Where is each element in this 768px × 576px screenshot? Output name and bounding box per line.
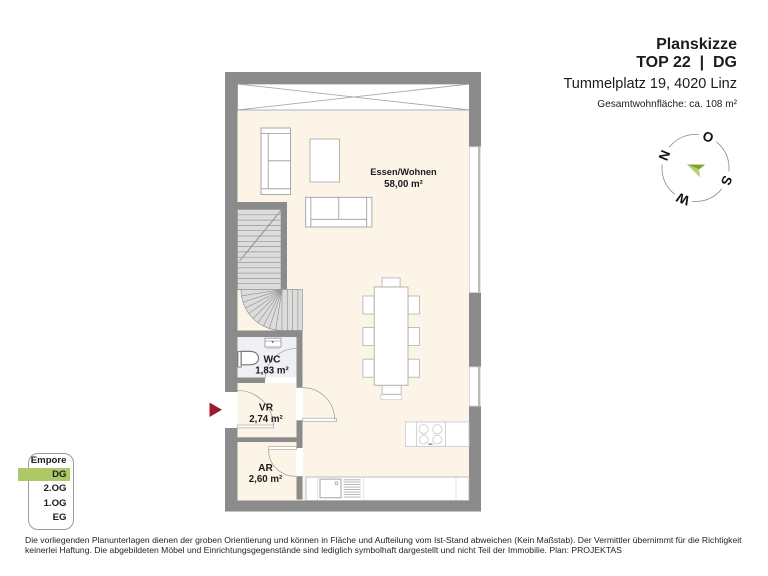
svg-text:VR: VR [259, 402, 274, 413]
svg-text:2,74 m²: 2,74 m² [249, 414, 283, 425]
svg-text:58,00 m²: 58,00 m² [384, 179, 424, 190]
svg-text:AR: AR [258, 463, 273, 474]
svg-text:WC: WC [264, 354, 282, 365]
svg-text:Essen/Wohnen: Essen/Wohnen [370, 167, 437, 177]
svg-text:1,83 m²: 1,83 m² [255, 366, 289, 377]
svg-text:2,60 m²: 2,60 m² [249, 474, 283, 485]
